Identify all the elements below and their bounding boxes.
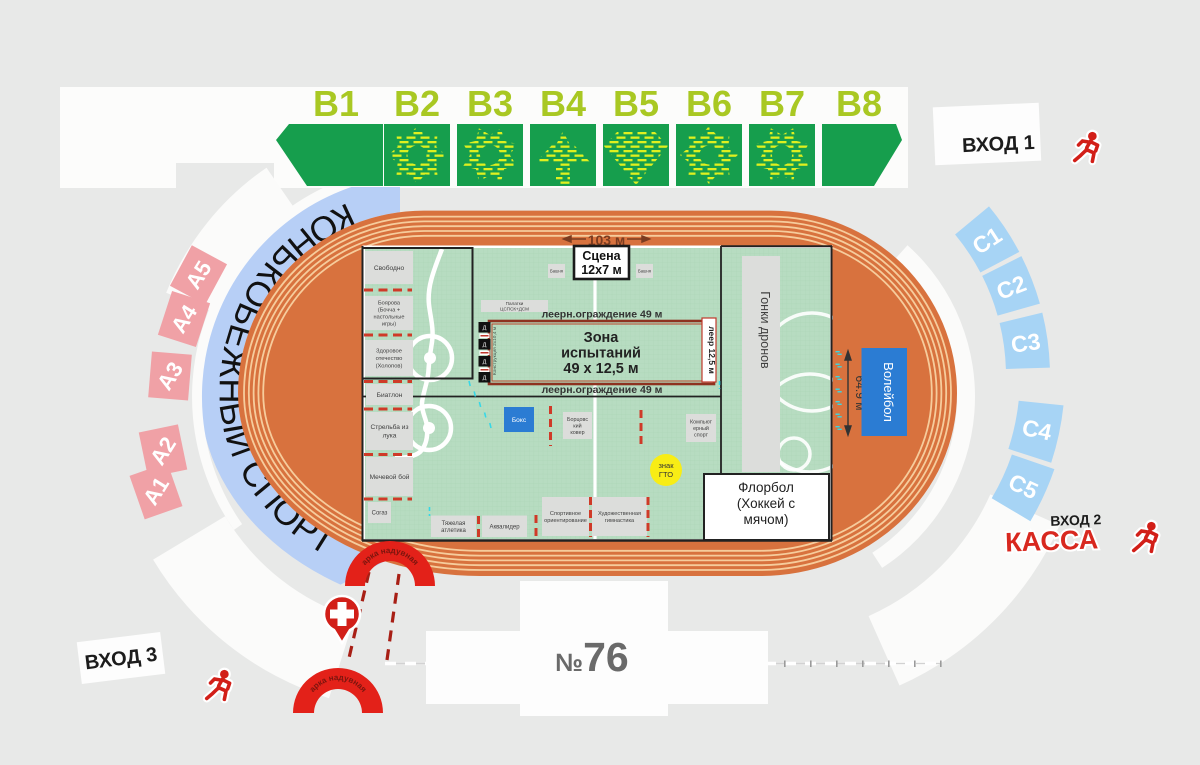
svg-text:B7: B7 (759, 83, 805, 124)
svg-text:Волейбол: Волейбол (881, 362, 896, 422)
svg-text:Свободно: Свободно (374, 264, 405, 272)
svg-text:Компьют: Компьют (690, 420, 712, 426)
svg-text:Д: Д (483, 360, 487, 366)
svg-text:Художественная: Художественная (598, 511, 641, 517)
svg-text:B1: B1 (313, 83, 359, 124)
svg-text:КАССА: КАССА (1005, 524, 1099, 557)
svg-text:леер 12,5 м: леер 12,5 м (707, 326, 717, 374)
svg-text:Конструкция 2х10,4 м: Конструкция 2х10,4 м (492, 327, 498, 375)
svg-text:ориентирование: ориентирование (544, 518, 587, 524)
svg-text:(Бочча +: (Бочча + (378, 308, 400, 314)
svg-text:Палатки: Палатки (506, 301, 524, 306)
svg-text:(Хоккей с: (Хоккей с (737, 496, 796, 511)
svg-text:Зона: Зона (584, 330, 620, 346)
svg-text:Гонки дронов: Гонки дронов (758, 291, 772, 369)
svg-text:B6: B6 (686, 83, 732, 124)
svg-text:настольные: настольные (374, 315, 405, 321)
svg-text:ковер: ковер (570, 430, 584, 436)
svg-text:Д: Д (483, 376, 487, 382)
svg-text:леерн.ограждение 49 м: леерн.ограждение 49 м (542, 384, 663, 396)
svg-text:игры): игры) (382, 322, 396, 328)
svg-text:лука: лука (383, 432, 397, 439)
svg-text:Боярова: Боярова (378, 301, 401, 307)
svg-text:Стрельба из: Стрельба из (370, 423, 408, 431)
svg-text:Д: Д (483, 326, 487, 332)
svg-text:B8: B8 (836, 83, 882, 124)
svg-text:Д: Д (483, 343, 487, 349)
svg-text:Башня: Башня (550, 269, 563, 274)
svg-text:ГТО: ГТО (659, 470, 673, 479)
svg-text:Аквалидер: Аквалидер (489, 524, 520, 530)
svg-text:Тяжелая: Тяжелая (442, 521, 466, 527)
svg-text:Сцена: Сцена (582, 249, 621, 263)
svg-text:ВХОД 1: ВХОД 1 (962, 132, 1036, 157)
svg-text:спорт: спорт (694, 432, 708, 438)
svg-text:B3: B3 (467, 83, 513, 124)
svg-text:(Холопов): (Холопов) (376, 364, 403, 370)
svg-text:ерный: ерный (693, 425, 709, 432)
svg-text:Согаз: Согаз (372, 511, 388, 517)
svg-text:Башня: Башня (638, 269, 651, 274)
svg-text:12х7 м: 12х7 м (581, 263, 622, 277)
svg-text:С3: С3 (1009, 328, 1042, 358)
svg-text:кий: кий (573, 422, 581, 429)
svg-text:знак: знак (658, 461, 674, 470)
svg-text:Бокс: Бокс (512, 417, 527, 424)
svg-text:гимнастика: гимнастика (605, 518, 635, 524)
svg-text:леерн.ограждение 49 м: леерн.ограждение 49 м (542, 309, 663, 321)
svg-text:B4: B4 (540, 83, 586, 124)
svg-text:испытаний: испытаний (561, 346, 641, 362)
svg-text:Биатлон: Биатлон (377, 392, 403, 399)
svg-text:B5: B5 (613, 83, 659, 124)
svg-text:отечество: отечество (376, 356, 403, 362)
svg-text:49 х 12,5 м: 49 х 12,5 м (563, 361, 638, 377)
svg-text:мячом): мячом) (744, 512, 789, 527)
svg-text:Спортивное: Спортивное (550, 511, 581, 517)
svg-text:Борцовс: Борцовс (567, 417, 588, 423)
svg-text:Флорбол: Флорбол (738, 480, 794, 495)
svg-text:B2: B2 (394, 83, 440, 124)
svg-text:атлетика: атлетика (441, 528, 466, 534)
svg-text:Здоровое: Здоровое (376, 349, 402, 355)
svg-text:Мечевой бой: Мечевой бой (370, 473, 410, 481)
svg-text:ЦСПСК+ДСМ: ЦСПСК+ДСМ (500, 306, 529, 311)
